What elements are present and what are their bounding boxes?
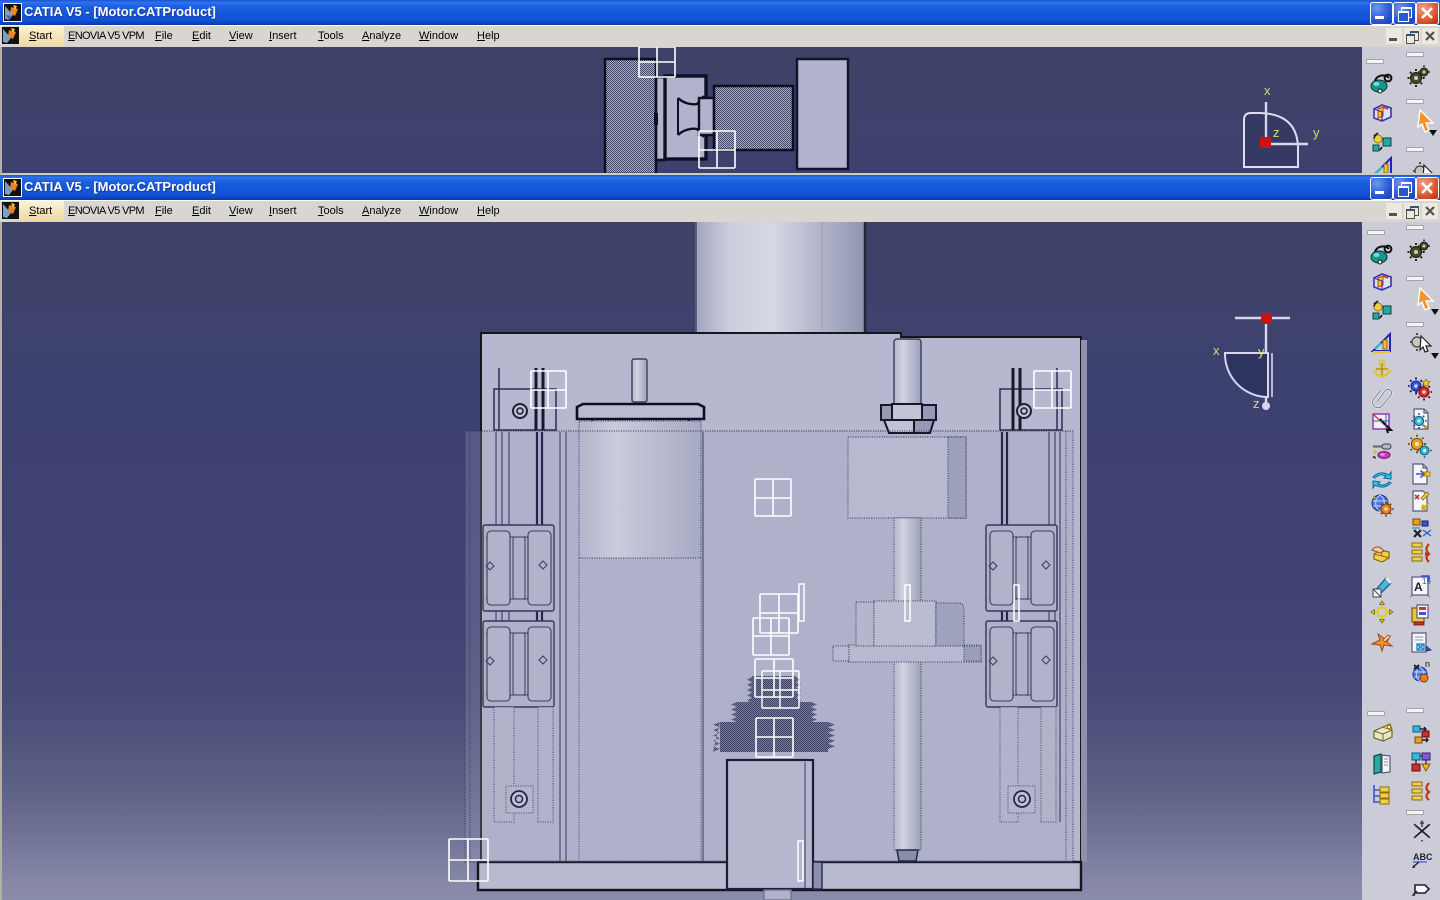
svg-text:z: z [1273, 125, 1280, 140]
svg-text:y: y [1258, 344, 1265, 359]
svg-text:x: x [1264, 83, 1271, 98]
svg-text:ABC: ABC [1413, 852, 1433, 862]
svg-text:15: 15 [1422, 577, 1431, 586]
svg-text:x: x [1213, 343, 1220, 358]
svg-text:z: z [1253, 396, 1260, 411]
svg-text:y: y [1313, 125, 1320, 140]
svg-text:n: n [1425, 659, 1430, 669]
